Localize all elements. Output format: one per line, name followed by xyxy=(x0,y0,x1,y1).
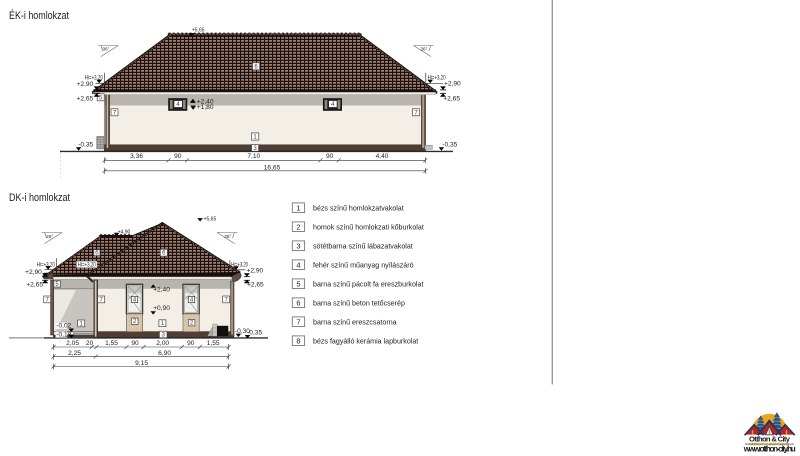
svg-text:20: 20 xyxy=(86,340,94,347)
svg-text:5: 5 xyxy=(296,280,300,289)
svg-text:+2,65: +2,65 xyxy=(247,282,264,289)
svg-text:7,10: 7,10 xyxy=(247,153,260,160)
svg-text:+4,90: +4,90 xyxy=(118,230,131,236)
svg-text:+2,90: +2,90 xyxy=(77,81,94,88)
svg-text:1: 1 xyxy=(296,204,300,213)
svg-text:barna színű ereszcsatorna: barna színű ereszcsatorna xyxy=(313,318,397,326)
svg-text:3: 3 xyxy=(296,242,300,251)
svg-text:35°: 35° xyxy=(224,234,231,239)
svg-text:1,55: 1,55 xyxy=(105,340,118,347)
svg-text:+2,65: +2,65 xyxy=(443,95,460,102)
svg-text:bézs fagyálló kerámia lapburko: bézs fagyálló kerámia lapburkolat xyxy=(313,337,418,345)
svg-text:+2,90: +2,90 xyxy=(444,81,461,88)
svg-text:2,00: 2,00 xyxy=(156,340,169,347)
svg-text:6,90: 6,90 xyxy=(158,350,171,357)
svg-text:+5,65: +5,65 xyxy=(204,217,217,223)
svg-text:90: 90 xyxy=(131,340,139,347)
svg-text:7: 7 xyxy=(296,318,300,327)
svg-text:90: 90 xyxy=(326,153,334,160)
svg-text:36°: 36° xyxy=(103,47,110,52)
svg-text:+2,65: +2,65 xyxy=(26,281,43,288)
svg-text:1,55: 1,55 xyxy=(207,340,220,347)
svg-text:sötétbarna színű lábazatvakola: sötétbarna színű lábazatvakolat xyxy=(313,242,413,250)
svg-text:90: 90 xyxy=(174,153,182,160)
svg-text:6: 6 xyxy=(296,299,300,308)
svg-text:2,25: 2,25 xyxy=(68,350,81,357)
svg-text:+5,65: +5,65 xyxy=(192,28,205,34)
svg-text:8: 8 xyxy=(296,337,300,346)
svg-text:3,36: 3,36 xyxy=(130,153,143,160)
svg-text:+0,90: +0,90 xyxy=(153,305,170,312)
svg-text:4,40: 4,40 xyxy=(376,153,389,160)
svg-text:ÉK-i homlokzat: ÉK-i homlokzat xyxy=(9,9,69,22)
svg-text:2: 2 xyxy=(296,223,300,232)
svg-text:homok színű homlokzati kőburko: homok színű homlokzati kőburkolat xyxy=(313,223,424,231)
svg-text:www.otthon-city.hu: www.otthon-city.hu xyxy=(743,445,796,454)
svg-text:36°: 36° xyxy=(421,47,428,52)
svg-text:9,15: 9,15 xyxy=(135,360,148,367)
svg-text:2,05: 2,05 xyxy=(66,340,79,347)
svg-text:-0,35: -0,35 xyxy=(442,142,457,149)
svg-text:Hi=+3,20: Hi=+3,20 xyxy=(78,261,96,268)
svg-text:barna színű beton tetőcserép: barna színű beton tetőcserép xyxy=(313,299,405,307)
svg-text:+2,40: +2,40 xyxy=(153,287,170,294)
svg-text:4: 4 xyxy=(296,261,300,270)
svg-text:+2,65: +2,65 xyxy=(77,95,94,102)
svg-text:DK-i homlokzat: DK-i homlokzat xyxy=(9,192,70,204)
svg-text:+2,90: +2,90 xyxy=(25,269,42,276)
svg-text:26°: 26° xyxy=(46,234,53,239)
svg-text:Otthon & City: Otthon & City xyxy=(749,435,791,444)
svg-text:90: 90 xyxy=(187,340,195,347)
svg-text:Hi=+3,20: Hi=+3,20 xyxy=(37,262,55,269)
svg-text:+1,80: +1,80 xyxy=(197,104,214,111)
svg-text:bézs színű homlokzatvakolat: bézs színű homlokzatvakolat xyxy=(313,204,404,212)
svg-text:16,65: 16,65 xyxy=(264,165,281,172)
svg-text:fehér színű műanyag nyílászáró: fehér színű műanyag nyílászáró xyxy=(313,261,414,269)
svg-text:barna színű pácolt fa ereszbur: barna színű pácolt fa ereszburkolat xyxy=(313,280,423,288)
